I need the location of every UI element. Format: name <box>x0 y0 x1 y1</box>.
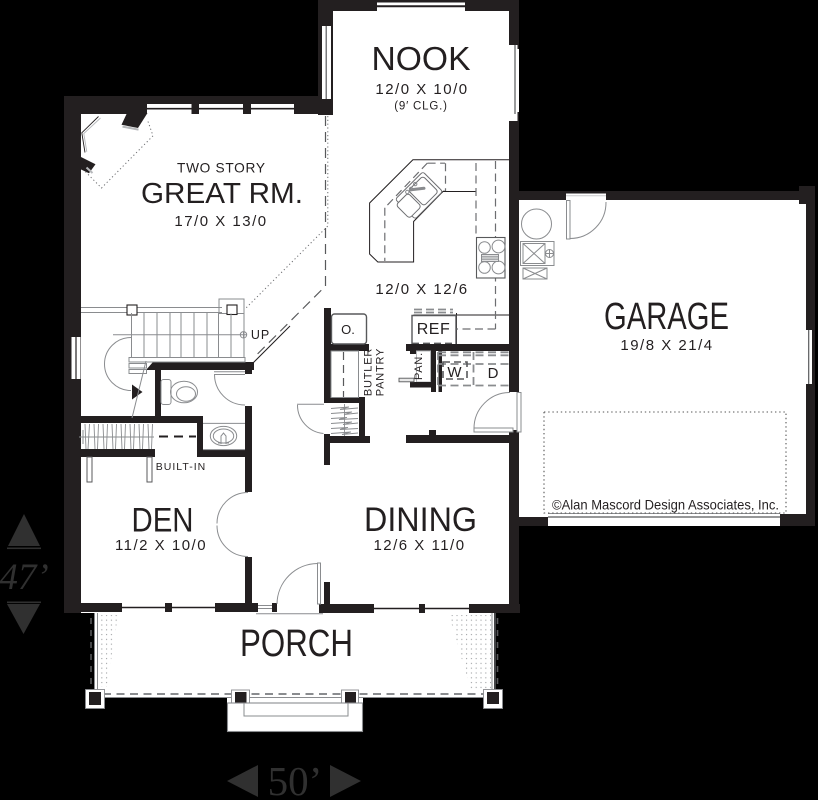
svg-text:12/0 X 12/6: 12/0 X 12/6 <box>375 281 468 298</box>
svg-text:17/0 X 13/0: 17/0 X 13/0 <box>174 213 267 230</box>
svg-text:REF: REF <box>417 321 451 338</box>
svg-text:50’: 50’ <box>268 758 323 800</box>
svg-text:NOOK: NOOK <box>372 40 471 77</box>
svg-text:D: D <box>488 365 499 382</box>
svg-text:11/2 X 10/0: 11/2 X 10/0 <box>115 537 207 554</box>
svg-text:DINING: DINING <box>364 501 477 539</box>
svg-text:UP: UP <box>251 328 270 342</box>
svg-text:PAN.: PAN. <box>413 352 425 380</box>
svg-text:GREAT RM.: GREAT RM. <box>141 178 303 210</box>
svg-text:12/6 X 11/0: 12/6 X 11/0 <box>373 537 465 554</box>
svg-text:GARAGE: GARAGE <box>604 296 729 338</box>
svg-text:DEN: DEN <box>132 502 194 540</box>
svg-text:PORCH: PORCH <box>240 623 353 665</box>
svg-text:TWO STORY: TWO STORY <box>177 161 265 176</box>
svg-text:O.: O. <box>341 322 355 337</box>
svg-text:12/0 X 10/0: 12/0 X 10/0 <box>375 81 468 98</box>
svg-text:19/8 X 21/4: 19/8 X 21/4 <box>620 337 713 354</box>
svg-text:BUTLERPANTRY: BUTLERPANTRY <box>363 348 387 396</box>
svg-text:(9′ CLG.): (9′ CLG.) <box>394 101 447 113</box>
svg-text:47’: 47’ <box>0 557 49 598</box>
svg-text:W: W <box>447 364 462 381</box>
svg-text:BUILT-IN: BUILT-IN <box>156 461 206 473</box>
svg-text:©Alan Mascord Design Associate: ©Alan Mascord Design Associates, Inc. <box>552 497 779 513</box>
